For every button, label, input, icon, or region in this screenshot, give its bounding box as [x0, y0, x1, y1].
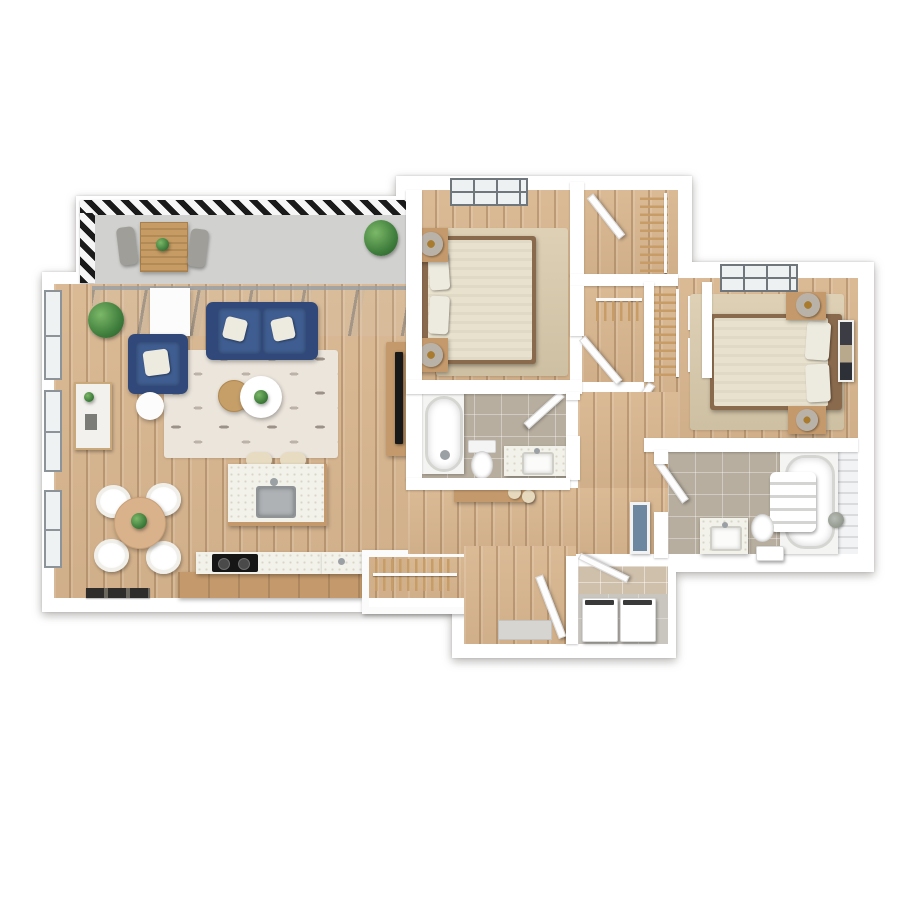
toilet2-bowl: [751, 514, 774, 542]
armchair-pillow: [142, 348, 170, 376]
coat-rod: [373, 573, 457, 576]
wall-bed1-closet1: [570, 182, 584, 276]
wall-bath1-bottom: [406, 478, 570, 490]
console-plant: [84, 392, 94, 402]
window-left-2: [44, 390, 62, 472]
bed1-pillow-2: [428, 296, 450, 335]
wall-bed1-bath1: [406, 380, 582, 394]
bathroom2-plant: [828, 512, 844, 528]
kitchen-counter-right: [322, 552, 362, 574]
bedroom2-window: [720, 264, 798, 292]
bed2: [710, 314, 842, 410]
wall-closet2-left: [644, 282, 654, 382]
vanity1-faucet: [534, 448, 540, 454]
bedroom2-wall-art: [838, 320, 854, 382]
island-sink: [256, 486, 296, 518]
bedroom1-window: [450, 178, 528, 206]
dryer-controls: [623, 600, 652, 605]
bed1-lamp-top: [419, 232, 443, 256]
bed2-pillow-2: [805, 363, 831, 402]
bed1-lamp-bottom: [419, 343, 443, 367]
dining-table-plant: [131, 513, 147, 529]
burner-2: [238, 558, 250, 570]
accent-table-round: [136, 392, 164, 420]
floor-plan: [0, 0, 900, 900]
kitchen-counter-left: [196, 552, 322, 574]
vanity2: [700, 518, 748, 554]
wall-entry-laundry: [566, 556, 578, 644]
console-decor: [85, 414, 97, 430]
sofa-pillow-right: [270, 316, 296, 342]
hall-pouf-2: [522, 490, 535, 503]
wall-bed1-hall1: [570, 286, 584, 336]
window-left-3: [44, 490, 62, 568]
table-plant: [156, 238, 169, 251]
entry-mat: [498, 620, 552, 640]
vanity2-sink: [710, 526, 742, 551]
closet2-hangers: [652, 290, 676, 376]
wall-hall-bath2-b: [654, 512, 668, 558]
bathroom2-tile-wall: [836, 450, 858, 554]
bathtub1-fixture: [440, 450, 450, 460]
balcony-awning-stripe-top: [80, 200, 408, 215]
washer-controls: [585, 600, 614, 605]
vanity1: [504, 446, 566, 476]
television: [395, 352, 403, 444]
bathtub1: [422, 392, 464, 474]
cooktop: [212, 554, 258, 572]
wall-bed2-bottom: [644, 438, 858, 452]
washer: [582, 598, 618, 642]
sofa: [206, 302, 318, 360]
toilet2: [748, 514, 776, 546]
white-side-table: [150, 288, 190, 336]
toilet1: [468, 440, 494, 478]
console-table-left: [74, 382, 112, 450]
window-left-1: [44, 290, 62, 380]
closet2-rod: [676, 289, 679, 377]
dryer: [620, 598, 656, 642]
counter-faucet: [338, 558, 345, 565]
towel-shelf: [770, 472, 816, 532]
wall-bath1-right-a: [566, 392, 580, 400]
island-faucet: [270, 478, 278, 486]
wall-bath1-right-b: [566, 436, 580, 480]
kitchen-island: [228, 464, 327, 526]
bed2-lamp-bottom: [796, 409, 818, 431]
bed2-lamp-top: [796, 293, 820, 317]
bed2-pillow-1: [805, 321, 832, 361]
bathtub1-basin: [425, 396, 463, 472]
bathroom2-storage-box: [756, 546, 784, 561]
burner-1: [218, 558, 230, 570]
toilet1-bowl: [471, 451, 493, 479]
coffee-table-plant: [254, 390, 268, 404]
vanity1-sink: [522, 452, 554, 475]
wall-hall-bath2-a: [654, 450, 668, 464]
wall-living-bed1: [406, 190, 422, 480]
corner-plant: [88, 302, 124, 338]
hall-mirror: [630, 502, 650, 554]
armchair: [128, 334, 188, 394]
doormat-dark: [86, 588, 150, 598]
wall-closet1-hall1: [570, 274, 678, 286]
wall-closet2-right: [702, 282, 712, 378]
vanity2-faucet: [722, 522, 728, 528]
closet1-rod: [664, 193, 667, 273]
balcony-awning-stripe-left: [80, 213, 95, 283]
kitchen-cabinets: [178, 572, 362, 598]
balcony-plant: [364, 220, 398, 256]
hallcloset-hangers: [596, 301, 642, 321]
